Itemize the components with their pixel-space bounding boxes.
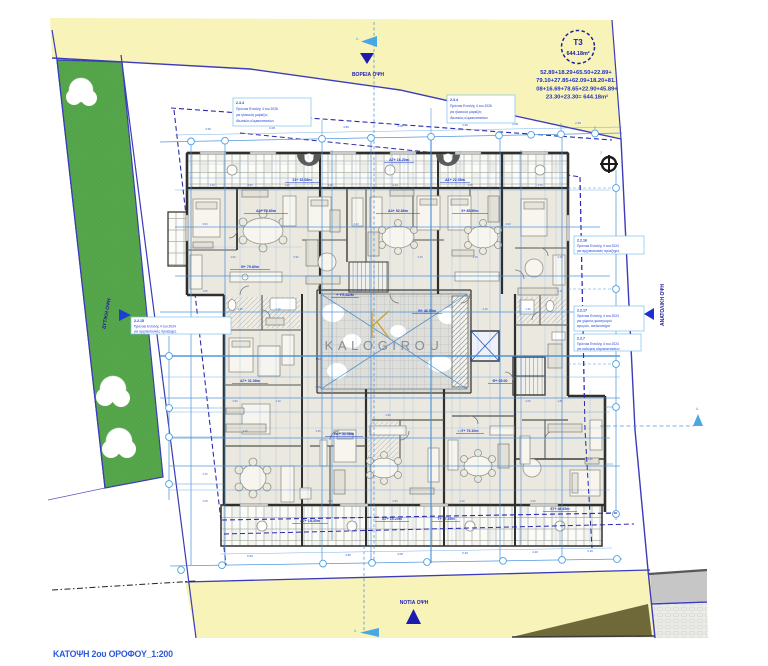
svg-text:αγωγών, ανελκυστήρα: αγωγών, ανελκυστήρα xyxy=(577,324,610,328)
svg-text:ΝΟΤΙΑ ΟΨΗ: ΝΟΤΙΑ ΟΨΗ xyxy=(400,600,429,606)
svg-text:5.30: 5.30 xyxy=(462,551,468,555)
svg-text:για ηλιακούς μαρκίζες: για ηλιακούς μαρκίζες xyxy=(450,110,482,114)
svg-text:Δ7+ 16.20m: Δ7+ 16.20m xyxy=(389,158,409,162)
svg-text:1.20: 1.20 xyxy=(327,499,333,503)
svg-text:Θ+ 46.55m: Θ+ 46.55m xyxy=(418,309,436,313)
svg-text:2.35: 2.35 xyxy=(392,499,398,503)
svg-text:Δ7+ 15.20m: Δ7+ 15.20m xyxy=(382,517,402,521)
svg-text:για χώρους φωταγωγού: για χώρους φωταγωγού xyxy=(577,319,612,323)
svg-text:3.25: 3.25 xyxy=(327,183,333,187)
svg-text:Δ7+ 18.45m: Δ7+ 18.45m xyxy=(300,519,320,523)
svg-text:1.25: 1.25 xyxy=(472,255,478,259)
svg-text:2.3.4: 2.3.4 xyxy=(236,101,244,105)
svg-text:4.08: 4.08 xyxy=(397,124,403,128)
svg-text:1.10: 1.10 xyxy=(275,399,281,403)
svg-text:1.08: 1.08 xyxy=(202,499,208,503)
svg-text:3.40: 3.40 xyxy=(242,429,248,433)
svg-text:2.2.7: 2.2.7 xyxy=(577,337,585,341)
svg-text:1.20: 1.20 xyxy=(355,289,361,293)
svg-text:1.40: 1.40 xyxy=(209,183,215,187)
svg-text:3.50: 3.50 xyxy=(202,222,208,226)
svg-text:Πρόνοια Εντολής 4 του 2024: Πρόνοια Εντολής 4 του 2024 xyxy=(134,325,176,329)
svg-text:Πρόνοια Εντολής 4 του 2024: Πρόνοια Εντολής 4 του 2024 xyxy=(577,314,619,318)
svg-text:1.05: 1.05 xyxy=(202,289,208,293)
svg-text:2.2.16: 2.2.16 xyxy=(577,239,587,243)
svg-text:για καλύψεις κλιμακοστασίων: για καλύψεις κλιμακοστασίων xyxy=(577,347,620,351)
svg-text:3.30: 3.30 xyxy=(587,549,593,553)
svg-text:Θ+ 79.80m: Θ+ 79.80m xyxy=(241,265,259,269)
svg-text:ΚΑΤΟΨΗ 2ου ΟΡΟΦΟΥ_1:200: ΚΑΤΟΨΗ 2ου ΟΡΟΦΟΥ_1:200 xyxy=(53,649,173,659)
svg-text:2.40: 2.40 xyxy=(353,222,359,226)
svg-text:ΒΟΡΕΙΑ ΟΨΗ: ΒΟΡΕΙΑ ΟΨΗ xyxy=(352,72,384,78)
svg-text:644.18m²: 644.18m² xyxy=(566,51,589,57)
svg-text:21+ 32.08m: 21+ 32.08m xyxy=(292,178,311,182)
svg-text:1.90: 1.90 xyxy=(230,255,236,259)
svg-text:1.20: 1.20 xyxy=(284,183,290,187)
svg-text:Πρόνοια Εντολής 4 του 2026: Πρόνοια Εντολής 4 του 2026 xyxy=(236,107,278,111)
svg-text:1.25: 1.25 xyxy=(315,429,321,433)
svg-text:2.20: 2.20 xyxy=(275,307,281,311)
svg-text:4.90: 4.90 xyxy=(205,127,211,131)
svg-text:Δ: Δ xyxy=(696,406,699,411)
svg-text:4.08: 4.08 xyxy=(397,552,403,556)
svg-text:2.2.15: 2.2.15 xyxy=(134,319,144,323)
svg-text:2.90: 2.90 xyxy=(385,413,391,417)
svg-text:67+ 48.45m: 67+ 48.45m xyxy=(550,507,569,511)
svg-text:2.90: 2.90 xyxy=(505,222,511,226)
svg-text:4.05: 4.05 xyxy=(467,183,473,187)
svg-text:6.08: 6.08 xyxy=(269,126,275,130)
svg-text:2.36: 2.36 xyxy=(202,472,208,476)
svg-text:1.45: 1.45 xyxy=(237,307,243,311)
svg-text:1.90: 1.90 xyxy=(315,357,321,361)
svg-text:0.90: 0.90 xyxy=(293,255,299,259)
svg-text:για αρχιτεκτονικές προεξοχές: για αρχιτεκτονικές προεξοχές xyxy=(577,249,620,253)
svg-text:0.95: 0.95 xyxy=(315,385,321,389)
svg-text:Δ3+ 79.80m: Δ3+ 79.80m xyxy=(256,209,276,213)
svg-text:1.10: 1.10 xyxy=(557,289,563,293)
svg-text:2.90: 2.90 xyxy=(530,499,536,503)
svg-text:Δ1+ 22.08m: Δ1+ 22.08m xyxy=(445,178,465,182)
svg-text:4.80: 4.80 xyxy=(343,125,349,129)
svg-text:2.40: 2.40 xyxy=(482,307,488,311)
svg-text:ΑΝΑΤΟΛΙΚΗ ΟΨΗ: ΑΝΑΤΟΛΙΚΗ ΟΨΗ xyxy=(660,284,666,326)
svg-text:KALOGIROU: KALOGIROU xyxy=(325,338,444,353)
svg-text:79.10+27.85+62.09+18.20+81.: 79.10+27.85+62.09+18.20+81. xyxy=(536,78,616,84)
svg-text:2.90: 2.90 xyxy=(232,399,238,403)
svg-text:Τ+ 27.45m: Τ+ 27.45m xyxy=(437,517,454,521)
svg-text:2.30: 2.30 xyxy=(575,121,581,125)
svg-text:1.36: 1.36 xyxy=(525,307,531,311)
svg-text:για αρχιτεκτονικές προεξοχές: για αρχιτεκτονικές προεξοχές xyxy=(134,330,177,334)
svg-text:7+ 76.10m: 7+ 76.10m xyxy=(461,429,478,433)
svg-text:2.3.4: 2.3.4 xyxy=(450,98,458,102)
svg-text:08+16.69+78.65+22.90+45.89+: 08+16.69+78.65+22.90+45.89+ xyxy=(536,87,618,93)
svg-text:4.20: 4.20 xyxy=(532,550,538,554)
svg-text:4.80: 4.80 xyxy=(345,553,351,557)
svg-text:2.28: 2.28 xyxy=(557,255,563,259)
svg-text:52.89+18.29+65.50+22.89+: 52.89+18.29+65.50+22.89+ xyxy=(540,70,612,76)
svg-text:1.80: 1.80 xyxy=(557,399,563,403)
svg-text:Πρόνοια Εντολής 4 του 2026: Πρόνοια Εντολής 4 του 2026 xyxy=(450,104,492,108)
svg-text:Πρόνοια Εντολής 4 του 2024: Πρόνοια Εντολής 4 του 2024 xyxy=(577,244,619,248)
svg-text:+ ΥΠ.ΔΩΜ: + ΥΠ.ΔΩΜ xyxy=(336,293,353,297)
svg-text:Δ7+ 31.08m: Δ7+ 31.08m xyxy=(240,379,260,383)
svg-text:Θ1+ 32.08m: Θ1+ 32.08m xyxy=(334,432,354,436)
svg-text:2.36: 2.36 xyxy=(537,183,543,187)
svg-text:2.05: 2.05 xyxy=(525,399,531,403)
svg-text:για ηλιακούς μαρκίζες: για ηλιακούς μαρκίζες xyxy=(236,113,268,117)
svg-text:3.15: 3.15 xyxy=(417,255,423,259)
svg-text:Φ+ 05.00: Φ+ 05.00 xyxy=(492,379,507,383)
svg-text:ιδιωτικώς κλιμακοστασίων: ιδιωτικώς κλιμακοστασίων xyxy=(450,116,488,120)
svg-text:2.10: 2.10 xyxy=(392,183,398,187)
svg-text:Πρόνοια Εντολής 4 του 2024: Πρόνοια Εντολής 4 του 2024 xyxy=(577,342,619,346)
svg-text:1.40: 1.40 xyxy=(459,499,465,503)
svg-text:23.30+23.30= 644.18m²: 23.30+23.30= 644.18m² xyxy=(546,94,608,101)
svg-text:ιδιωτικώς κλιμακοστασίων: ιδιωτικώς κλιμακοστασίων xyxy=(236,119,274,123)
svg-text:2.90: 2.90 xyxy=(247,183,253,187)
svg-text:2.2.17: 2.2.17 xyxy=(577,309,587,313)
svg-text:1.26: 1.26 xyxy=(587,457,593,461)
svg-text:Α4+ 52.89m: Α4+ 52.89m xyxy=(388,209,408,213)
svg-text:T3: T3 xyxy=(573,38,583,47)
svg-text:5.90: 5.90 xyxy=(247,554,253,558)
svg-text:4.90: 4.90 xyxy=(462,123,468,127)
svg-text:5+ 85.50m: 5+ 85.50m xyxy=(461,209,478,213)
